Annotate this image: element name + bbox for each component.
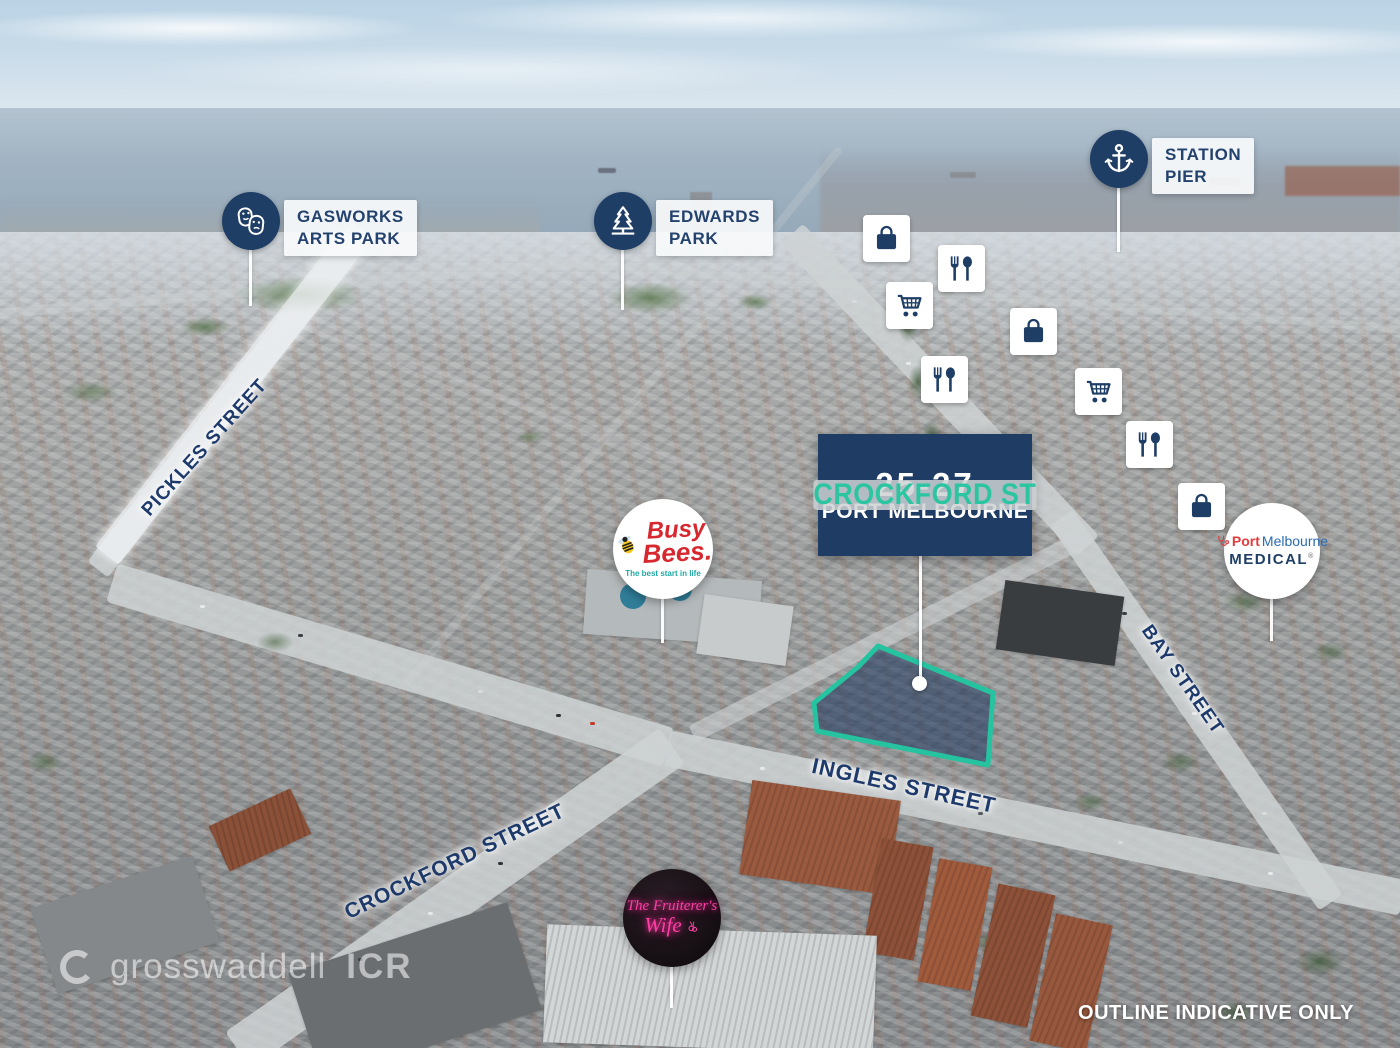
registered-mark: ® [1308,553,1315,560]
pointer-stem [661,597,664,643]
badge-leader-line [919,554,922,682]
edwards-label-line2: PARK [669,228,760,250]
watermark-brand: grosswaddell [110,947,326,987]
shopping-bag-icon [1010,308,1057,355]
shopping-bag-icon [1178,483,1225,530]
gasworks-marker [222,192,280,250]
pointer-stem [670,964,673,1008]
watermark-suffix: ICR [346,947,412,987]
ship [950,172,976,178]
gasworks-label-line1: GASWORKS [297,206,404,228]
ship [598,168,616,173]
medical-logo-word1: Port [1232,534,1260,548]
property-address-badge: 25-27 CROCKFORD ST PORT MELBOURNE [818,434,1032,556]
gasworks-label: GASWORKS ARTS PARK [284,200,417,256]
fruiterers-wife-logo: The Fruiterer's Wife [623,869,721,967]
stethoscope-icon [1216,534,1230,548]
station-pier-label-line1: STATION [1165,144,1241,166]
edwards-park-marker [594,192,652,250]
shopping-cart-icon [886,282,933,329]
ring-logo-icon [56,946,98,988]
pointer-stem [249,248,252,306]
busy-bees-tagline: The best start in life [625,569,701,578]
agency-watermark: grosswaddell ICR [56,946,413,988]
station-pier-label-line2: PIER [1165,166,1241,188]
station-pier-marker [1090,130,1148,188]
restaurant-icon [938,245,985,292]
pointer-stem [621,248,624,310]
fruiterers-wife-line2: Wife [644,914,681,936]
medical-logo-line2: MEDICAL [1229,551,1308,568]
edwards-park-label: EDWARDS PARK [656,200,773,256]
theater-masks-icon [233,203,269,239]
busy-bees-logo: Busy Bees. The best start in life [613,499,713,599]
address-street: CROCKFORD ST [814,480,1037,510]
clouds [0,0,1400,120]
port-melbourne-medical-logo: PortMelbourne MEDICAL® [1224,503,1320,599]
shopping-bag-icon [863,215,910,262]
cherries-icon [684,919,700,935]
restaurant-icon [921,356,968,403]
station-pier-label: STATION PIER [1152,138,1254,194]
pointer-stem [1270,597,1273,641]
gasworks-label-line2: ARTS PARK [297,228,404,250]
parked-cars [0,0,5,3]
pointer-stem [1117,186,1120,252]
busy-bees-word2: Bees. [642,540,713,568]
aerial-marketing-image: PICKLES STREET BAY STREET INGLES STREET … [0,0,1400,1048]
restaurant-icon [1126,421,1173,468]
roof-patch [696,594,793,666]
anchor-icon [1101,141,1137,177]
port-structures [1285,166,1400,196]
shopping-cart-icon [1075,368,1122,415]
bee-icon [614,529,642,560]
edwards-label-line1: EDWARDS [669,206,760,228]
site-pin-dot [912,676,927,691]
pine-tree-icon [605,203,641,239]
medical-logo-word2: Melbourne [1262,534,1328,548]
outline-disclaimer: OUTLINE INDICATIVE ONLY [1078,1002,1354,1025]
